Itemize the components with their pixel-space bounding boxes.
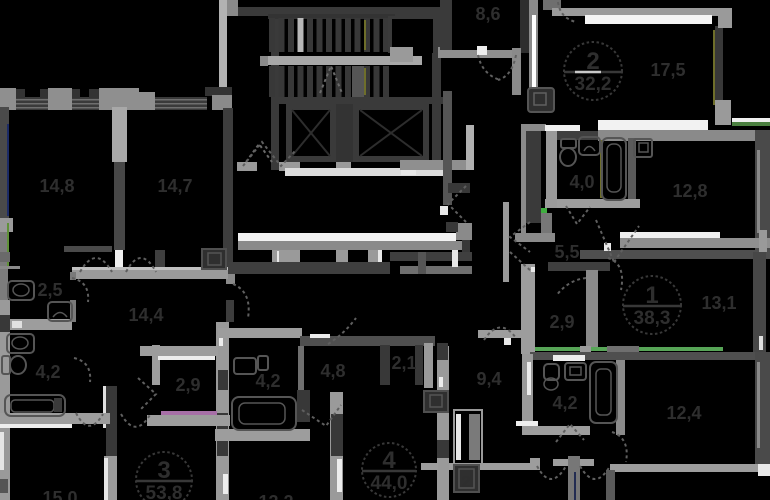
svg-text:4,2: 4,2 (552, 393, 577, 413)
svg-text:9,4: 9,4 (476, 369, 501, 389)
svg-text:4,8: 4,8 (320, 361, 345, 381)
svg-text:1: 1 (645, 282, 658, 309)
svg-text:38,3: 38,3 (634, 308, 671, 329)
svg-text:4,2: 4,2 (255, 371, 280, 391)
svg-text:2,9: 2,9 (175, 375, 200, 395)
svg-text:53,8: 53,8 (146, 483, 183, 500)
svg-text:17,5: 17,5 (650, 60, 685, 80)
svg-text:44,0: 44,0 (371, 473, 408, 494)
svg-text:32,2: 32,2 (575, 74, 612, 95)
svg-text:13,2: 13,2 (258, 492, 293, 500)
svg-text:14,7: 14,7 (157, 176, 192, 196)
svg-text:5,5: 5,5 (554, 242, 579, 262)
svg-text:4,2: 4,2 (35, 362, 60, 382)
svg-text:2: 2 (586, 48, 599, 75)
svg-text:13,1: 13,1 (701, 293, 736, 313)
svg-text:12,8: 12,8 (672, 181, 707, 201)
svg-text:14,4: 14,4 (128, 305, 163, 325)
svg-text:15,0: 15,0 (42, 488, 77, 500)
svg-text:12,4: 12,4 (666, 403, 701, 423)
svg-text:2,9: 2,9 (549, 312, 574, 332)
svg-text:4: 4 (382, 447, 396, 474)
svg-text:14,8: 14,8 (39, 176, 74, 196)
svg-text:3: 3 (157, 457, 170, 484)
svg-text:2,5: 2,5 (37, 280, 62, 300)
svg-text:8,6: 8,6 (475, 4, 500, 24)
svg-text:2,1: 2,1 (391, 353, 416, 373)
svg-text:2: 2 (462, 474, 471, 491)
svg-text:4,0: 4,0 (569, 172, 594, 192)
